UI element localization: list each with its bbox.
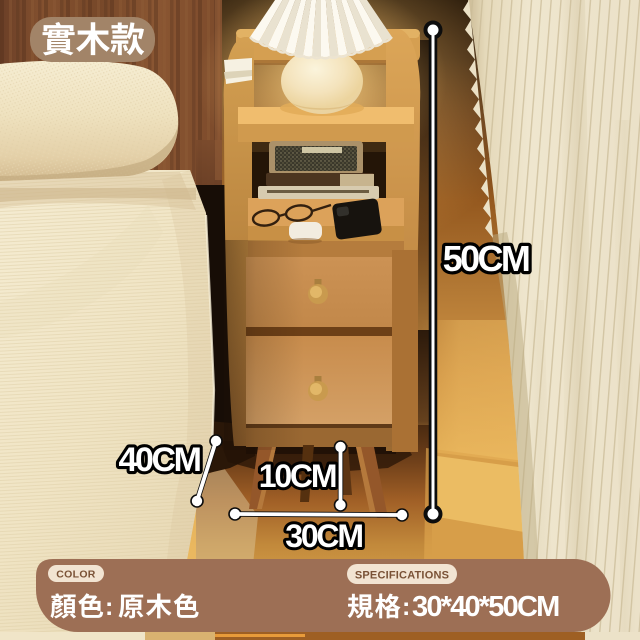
svg-text:40CM: 40CM <box>118 441 200 479</box>
svg-text:30*40*50CM: 30*40*50CM <box>412 591 559 623</box>
svg-text:10CM: 10CM <box>259 458 336 494</box>
svg-text::: : <box>402 593 410 621</box>
svg-text:50CM: 50CM <box>443 238 529 279</box>
svg-text:COLOR: COLOR <box>56 569 96 581</box>
svg-text:30CM: 30CM <box>285 518 362 554</box>
svg-text::: : <box>105 593 113 621</box>
svg-text:SPECIFICATIONS: SPECIFICATIONS <box>355 570 449 582</box>
